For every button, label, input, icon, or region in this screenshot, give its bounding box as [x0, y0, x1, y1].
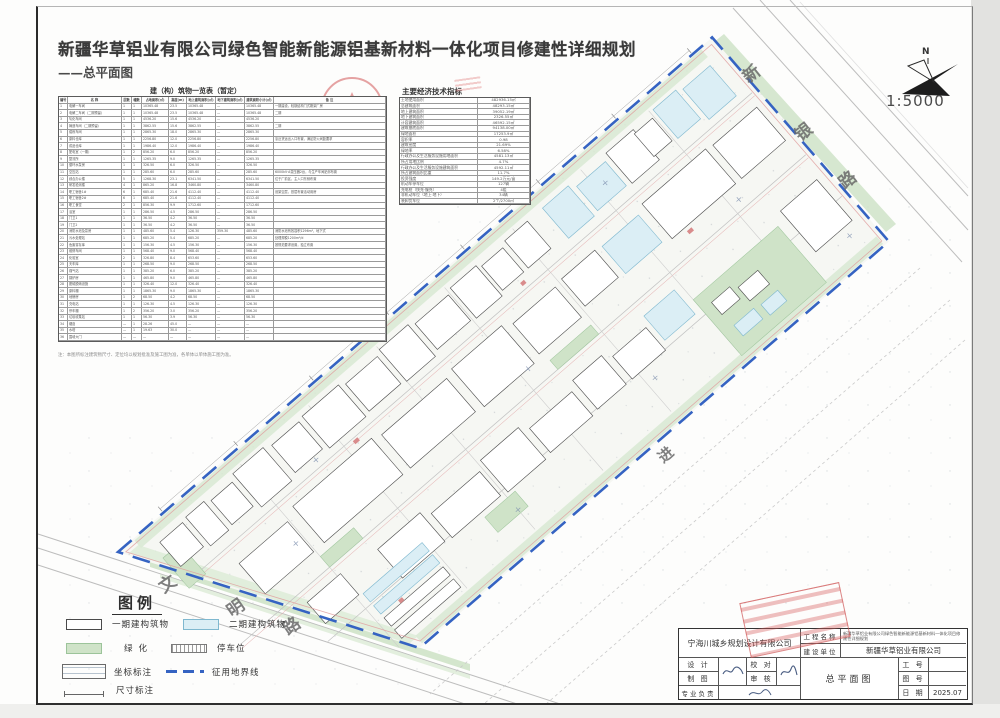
scan-margin-bottom — [0, 704, 1000, 718]
drawing-sheet: N 1:5000 新 银 路 文 明 路 进 新疆华草铝业有限公司绿色智能新能源… — [0, 0, 1000, 718]
sheet-frame — [36, 6, 973, 705]
scan-margin-right — [971, 0, 1000, 718]
